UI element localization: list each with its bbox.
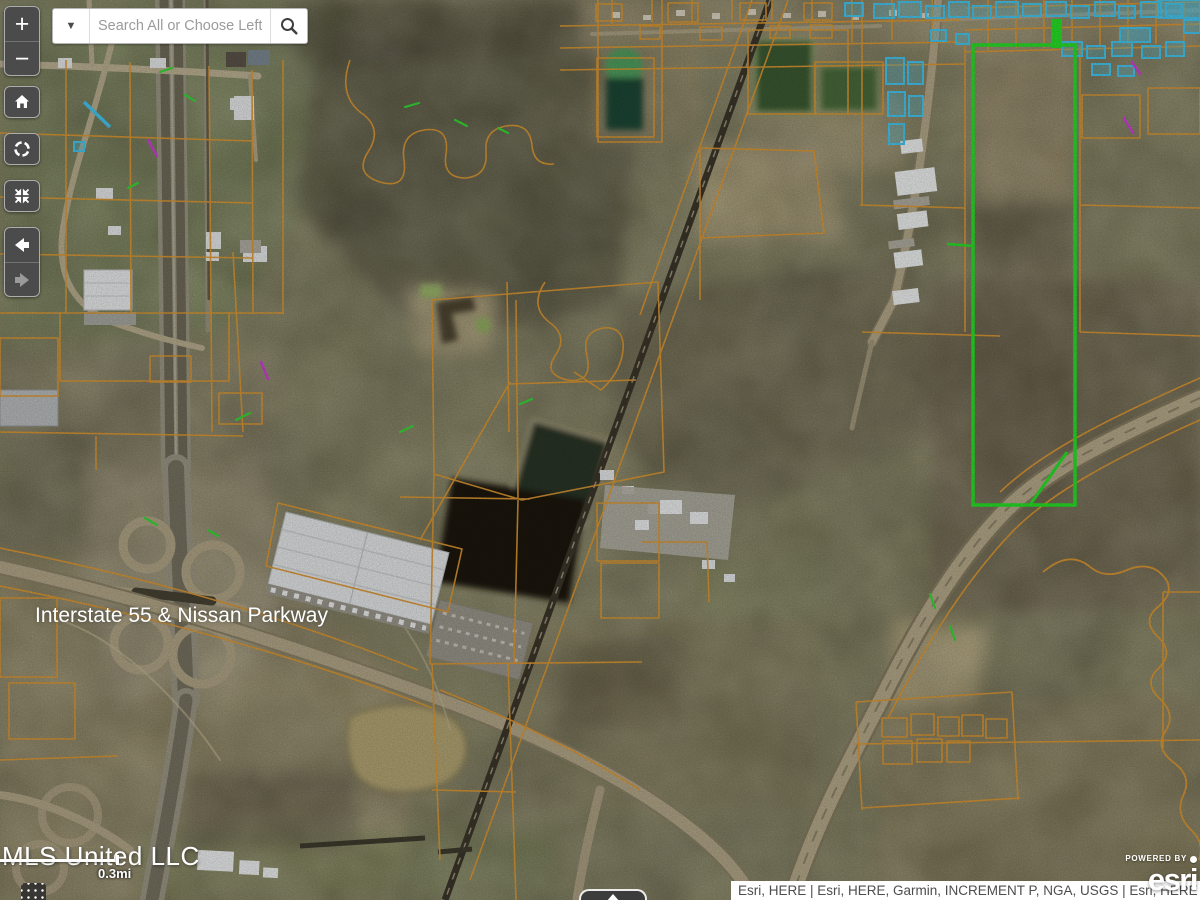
collapse-button[interactable]	[4, 180, 40, 212]
chevron-down-icon: ▼	[66, 20, 77, 32]
panel-toggle-button[interactable]	[579, 889, 647, 900]
map-viewport: ▼ + −	[0, 0, 1200, 900]
home-icon	[12, 92, 32, 112]
back-button[interactable]	[5, 228, 39, 262]
collapse-icon	[12, 186, 32, 206]
history-nav-group	[4, 227, 40, 297]
forward-button[interactable]	[5, 262, 39, 297]
scale-label: 0.3mi	[98, 866, 131, 881]
home-extent-button[interactable]	[4, 86, 40, 118]
search-bar: ▼	[52, 8, 308, 44]
search-category-dropdown[interactable]: ▼	[53, 9, 90, 43]
chevron-up-icon	[606, 894, 620, 900]
locate-button[interactable]	[4, 133, 40, 165]
locate-crosshair-icon	[12, 139, 32, 159]
zoom-out-button[interactable]: −	[5, 41, 39, 76]
satellite-map[interactable]	[0, 0, 1200, 900]
scale-bar-tick	[116, 855, 119, 865]
grain-overlay	[0, 0, 1200, 900]
arrow-left-icon	[12, 235, 32, 255]
grip-handle[interactable]	[21, 883, 46, 900]
esri-logo: POWERED BY esri	[1125, 855, 1197, 895]
arrow-right-icon	[12, 270, 32, 290]
search-icon	[279, 16, 299, 36]
search-input[interactable]	[90, 9, 270, 43]
zoom-control-group: + −	[4, 6, 40, 76]
search-button[interactable]	[270, 9, 307, 43]
road-label: Interstate 55 & Nissan Parkway	[35, 604, 328, 628]
zoom-in-button[interactable]: +	[5, 7, 39, 41]
scale-bar	[0, 859, 118, 862]
esri-wordmark: esri	[1125, 864, 1197, 895]
